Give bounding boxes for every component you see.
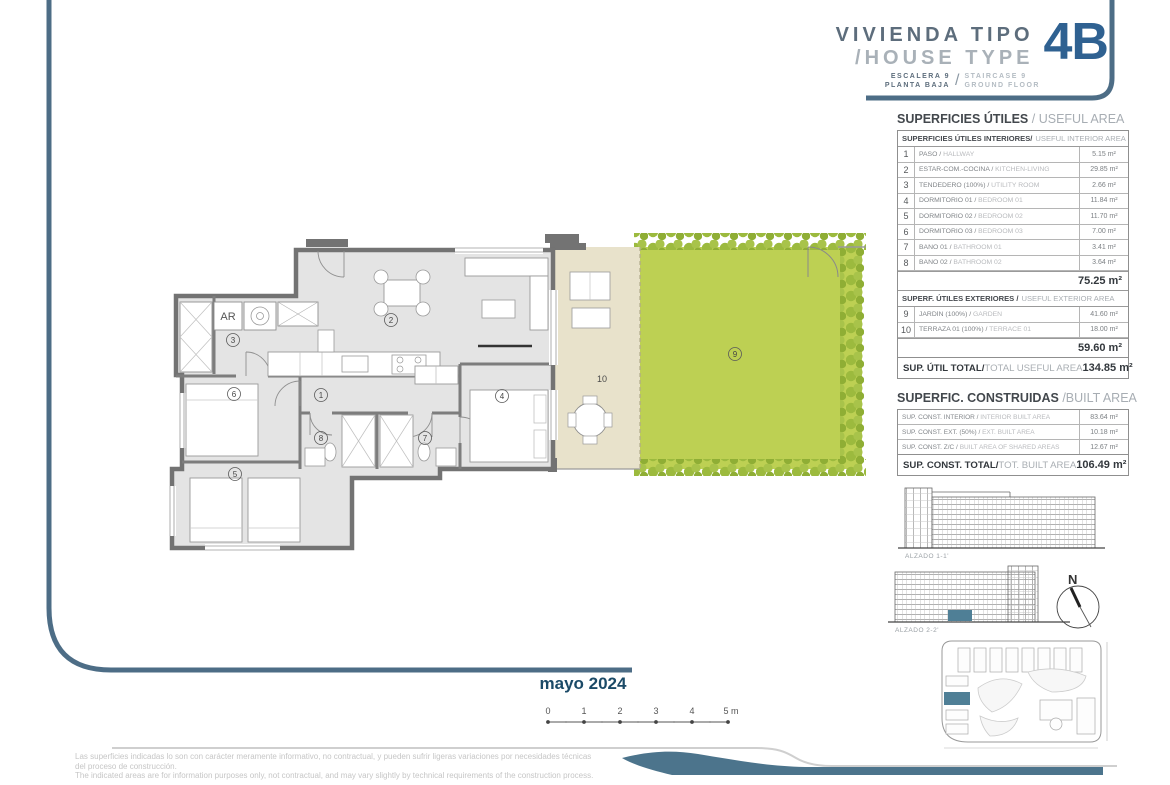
table-row: SUP. CONST. Z/C / BUILT AREA OF SHARED A… — [898, 440, 1128, 454]
coffee-table — [482, 300, 515, 318]
hedge-right — [840, 250, 864, 464]
stair-floor-block: ESCALERA 9 PLANTA BAJA / STAIRCASE 9 GRO… — [836, 72, 1040, 90]
garden: 9 — [634, 233, 866, 476]
dining-table — [384, 280, 420, 306]
unit-number: 4B — [1044, 18, 1108, 67]
scale-tick-3: 3 — [653, 706, 658, 716]
table-row: 9 JARDÍN (100%) / GARDEN 41.60 m² — [898, 307, 1128, 323]
kitchen-sink — [342, 356, 368, 372]
compass-n-label: N — [1068, 572, 1077, 587]
table-row: 1 PASO / HALLWAY 5.15 m² — [898, 147, 1128, 163]
sink — [436, 448, 456, 466]
table-row: 8 BAÑO 02 / BATHROOM 02 3.64 m² — [898, 256, 1128, 272]
table-row: 7 BAÑO 01 / BATHROOM 01 3.41 m² — [898, 240, 1128, 256]
toilet — [324, 443, 336, 461]
apartment: AR — [168, 234, 579, 552]
north-compass: N — [1057, 572, 1099, 628]
table-row: 3 TENDEDERO (100%) / UTILITY ROOM 2.66 m… — [898, 178, 1128, 194]
table-row: SUP. CONST. EXT. (50%) / EXT. BUILT AREA… — [898, 425, 1128, 440]
room-label-10: 10 — [597, 374, 607, 384]
alzado-1-label: ALZADO 1-1' — [905, 553, 949, 560]
useful-area-title: SUPERFICIES ÚTILES / USEFUL AREA — [897, 112, 1129, 126]
hedge-bottom — [634, 459, 866, 476]
interior-header: SUPERFICIES ÚTILES INTERIORES/ USEFUL IN… — [898, 131, 1128, 147]
disclaimer-line-es: Las superficies indicadas lo son con car… — [75, 752, 1155, 762]
useful-grand-total: SUP. ÚTIL TOTAL/TOTAL USEFUL AREA 134.85… — [897, 358, 1129, 379]
room-label-5: 5 — [233, 470, 238, 479]
ar-label: AR — [220, 311, 235, 323]
scale-tick-4: 4 — [689, 706, 694, 716]
washer — [244, 302, 276, 330]
disclaimer-line-en: The indicated areas are for information … — [75, 771, 1155, 781]
sofa — [465, 258, 548, 276]
table-row: 5 DORMITORIO 02 / BEDROOM 02 11.70 m² — [898, 209, 1128, 225]
exterior-header: SUPERF. ÚTILES EXTERIORES / USEFUL EXTER… — [898, 290, 1128, 307]
table-row: 10 TERRAZA 01 (100%) / TERRACE 01 18.00 … — [898, 323, 1128, 339]
site-highlight-unit — [944, 692, 970, 705]
wardrobe — [415, 366, 458, 384]
site-plan — [942, 641, 1107, 748]
scale-tick-1: 1 — [581, 706, 586, 716]
scale-tick-0: 0 — [545, 706, 550, 716]
date-label: mayo 2024 — [488, 674, 678, 694]
areas-panel: SUPERFICIES ÚTILES / USEFUL AREA SUPERFI… — [897, 112, 1129, 476]
highlighted-unit — [948, 610, 972, 621]
terrace-lounger — [572, 308, 610, 328]
elevation-2 — [888, 566, 1070, 622]
terrace: 10 — [548, 243, 640, 472]
hedge-top — [634, 233, 866, 250]
house-type-title-en: /HOUSE TYPE — [836, 47, 1034, 70]
room-label-4: 4 — [500, 392, 505, 401]
elevation-1 — [898, 488, 1105, 548]
disclaimer-text: Las superficies indicadas lo son con car… — [75, 752, 1155, 781]
room-label-7: 7 — [423, 434, 428, 443]
room-label-9: 9 — [733, 350, 738, 359]
closet — [180, 302, 212, 372]
bed — [248, 478, 300, 542]
bed — [186, 384, 258, 456]
built-grand-total: SUP. CONST. TOTAL/TOT. BUILT AREA 106.49… — [897, 455, 1129, 476]
table-row: 4 DORMITORIO 01 / BEDROOM 01 11.84 m² — [898, 194, 1128, 210]
disclaimer-line-es2: del proceso de construcción. — [75, 762, 1155, 772]
table-row: 2 ESTAR-COM.-COCINA / KITCHEN-LIVING 29.… — [898, 163, 1128, 179]
table-row: SUP. CONST. INTERIOR / INTERIOR BUILT AR… — [898, 410, 1128, 425]
floor-label-es: PLANTA BAJA — [885, 81, 950, 90]
interior-total: 75.25 m² — [898, 271, 1128, 290]
stair-label-en: STAIRCASE 9 — [964, 72, 1040, 81]
stair-label-es: ESCALERA 9 — [885, 72, 950, 81]
room-label-2: 2 — [389, 316, 394, 325]
scale-tick-5: 5 m — [723, 706, 738, 716]
slash-divider: / — [955, 72, 959, 90]
toilet — [418, 443, 430, 461]
floor-label-en: GROUND FLOOR — [964, 81, 1040, 90]
scale-tick-2: 2 — [617, 706, 622, 716]
bed — [190, 478, 242, 542]
title-block: VIVIENDA TIPO /HOUSE TYPE 4B ESCALERA 9 … — [836, 18, 1108, 90]
table-row: 6 DORMITORIO 03 / BEDROOM 03 7.00 m² — [898, 225, 1128, 241]
exterior-total: 59.60 m² — [898, 338, 1128, 357]
built-area-table: SUP. CONST. INTERIOR / INTERIOR BUILT AR… — [897, 409, 1129, 455]
useful-area-table: SUPERFICIES ÚTILES INTERIORES/ USEFUL IN… — [897, 130, 1129, 358]
built-area-title: SUPERFIC. CONSTRUIDAS /BUILT AREA — [897, 391, 1129, 405]
house-type-title-es: VIVIENDA TIPO — [836, 24, 1034, 47]
plan-sheet: 9 10 — [0, 0, 1170, 785]
scale-bar: 0 1 2 3 4 5 m — [545, 706, 738, 724]
sink — [305, 448, 325, 466]
compass-needle — [1071, 588, 1080, 607]
room-label-1: 1 — [319, 391, 324, 400]
alzado-2-label: ALZADO 2-2' — [895, 627, 939, 634]
room-label-3: 3 — [231, 336, 236, 345]
room-label-6: 6 — [232, 390, 237, 399]
room-label-8: 8 — [319, 434, 324, 443]
terrace-table — [573, 403, 607, 437]
